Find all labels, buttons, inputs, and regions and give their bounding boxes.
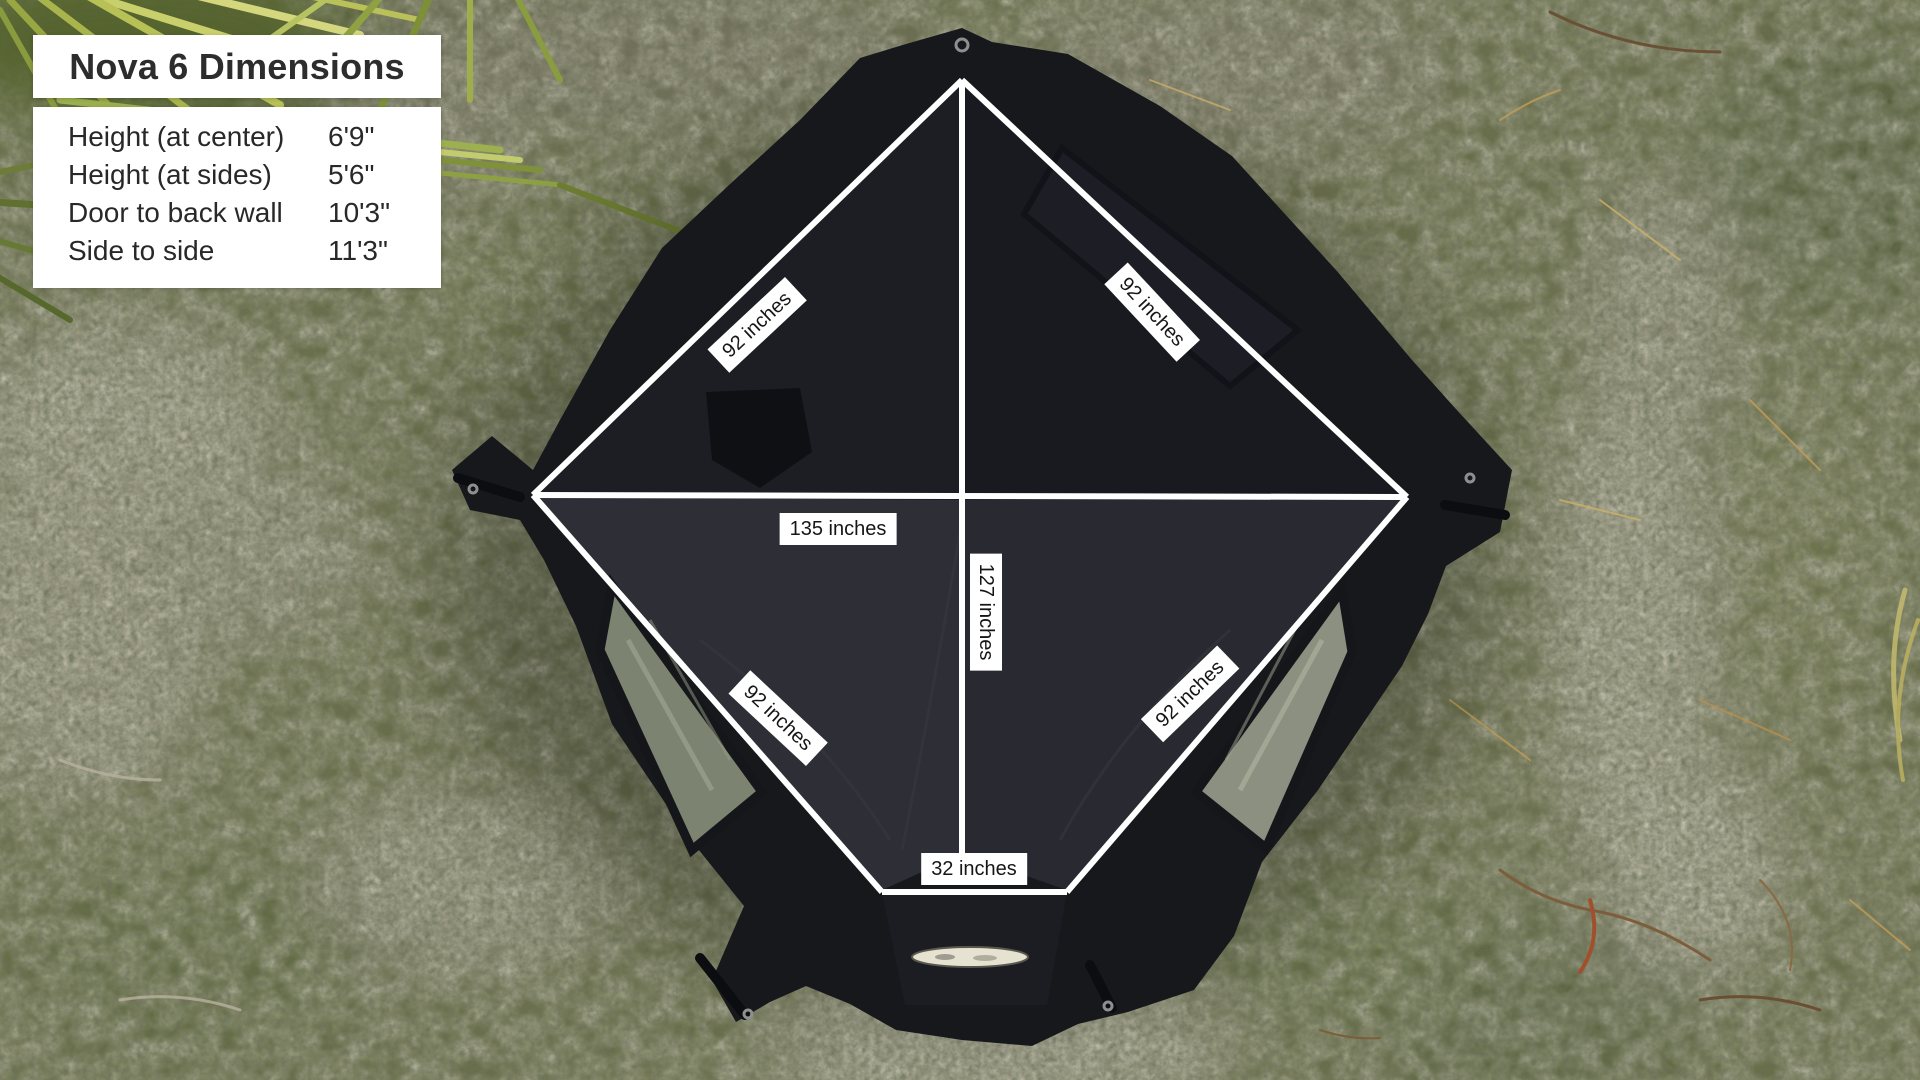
dimension-row: Side to side11'3": [68, 232, 441, 270]
panel-title-box: Nova 6 Dimensions: [33, 35, 441, 98]
dimension-row: Height (at center)6'9": [68, 118, 441, 156]
dimension-value: 10'3": [328, 194, 390, 232]
dimension-row: Height (at sides)5'6": [68, 156, 441, 194]
door-vent: [912, 947, 1028, 967]
dimension-value: 11'3": [328, 232, 388, 270]
dimension-label: Door to back wall: [68, 194, 328, 232]
dimension-label: Height (at sides): [68, 156, 328, 194]
dimension-value: 6'9": [328, 118, 374, 156]
tag-front-to-back: 127 inches: [970, 554, 1002, 671]
tent-dimensions-graphic: Nova 6 Dimensions Height (at center)6'9"…: [0, 0, 1920, 1080]
panel-title: Nova 6 Dimensions: [69, 46, 405, 88]
dimension-row: Door to back wall10'3": [68, 194, 441, 232]
tag-side-to-side: 135 inches: [780, 513, 897, 545]
line-side-to-side: [533, 495, 1407, 497]
dimension-value: 5'6": [328, 156, 374, 194]
dimension-label: Height (at center): [68, 118, 328, 156]
dimensions-panel: Height (at center)6'9" Height (at sides)…: [33, 107, 441, 288]
dimension-label: Side to side: [68, 232, 328, 270]
tag-door-width: 32 inches: [921, 853, 1027, 885]
